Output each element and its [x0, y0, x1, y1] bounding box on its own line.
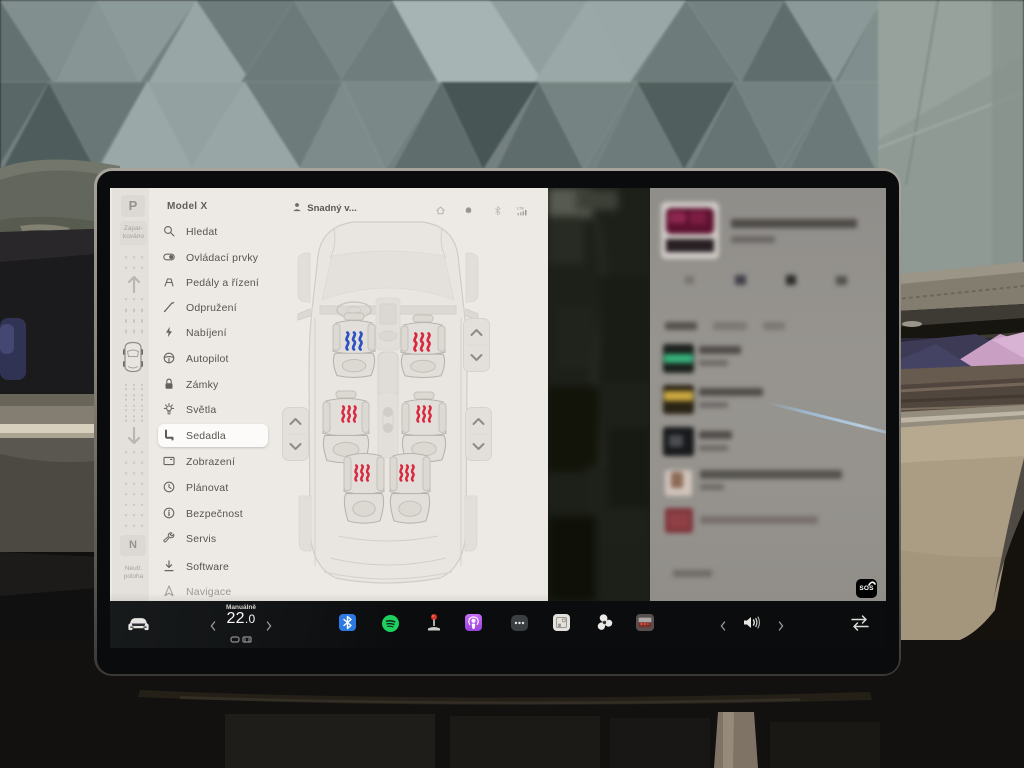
svg-text:LTE: LTE: [517, 207, 524, 211]
